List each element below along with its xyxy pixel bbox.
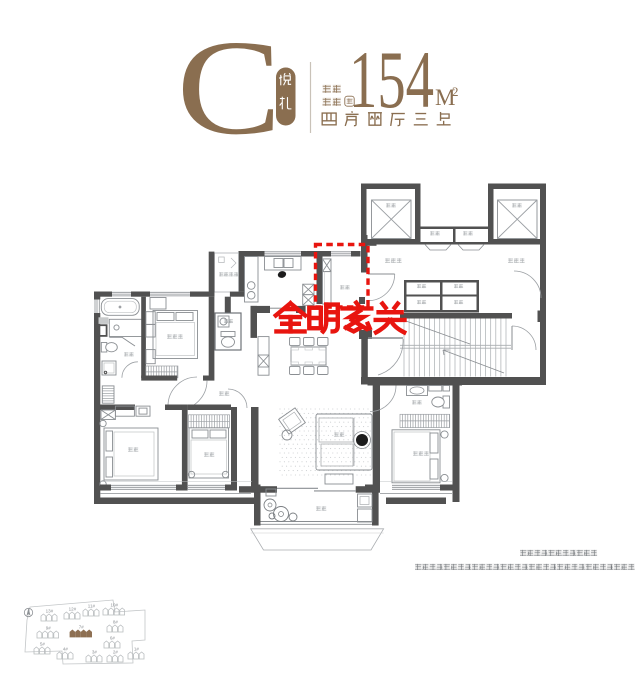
svg-text:2#: 2# (113, 650, 119, 655)
svg-text:11#: 11# (88, 604, 96, 609)
svg-text:3#: 3# (92, 650, 98, 655)
svg-text:6#: 6# (110, 636, 116, 641)
svg-text:C: C (177, 12, 282, 163)
svg-text:4#: 4# (63, 647, 69, 652)
svg-text:7#: 7# (79, 625, 85, 630)
svg-text:12#: 12# (69, 607, 77, 612)
svg-text:8#: 8# (113, 620, 119, 625)
svg-text:9#: 9# (46, 626, 52, 631)
svg-text:13#: 13# (46, 609, 54, 614)
svg-text:5#: 5# (40, 642, 46, 647)
svg-text:154: 154 (349, 34, 434, 125)
svg-text:10#: 10# (110, 603, 118, 608)
svg-text:2: 2 (452, 84, 459, 99)
svg-text:1#: 1# (134, 647, 140, 652)
